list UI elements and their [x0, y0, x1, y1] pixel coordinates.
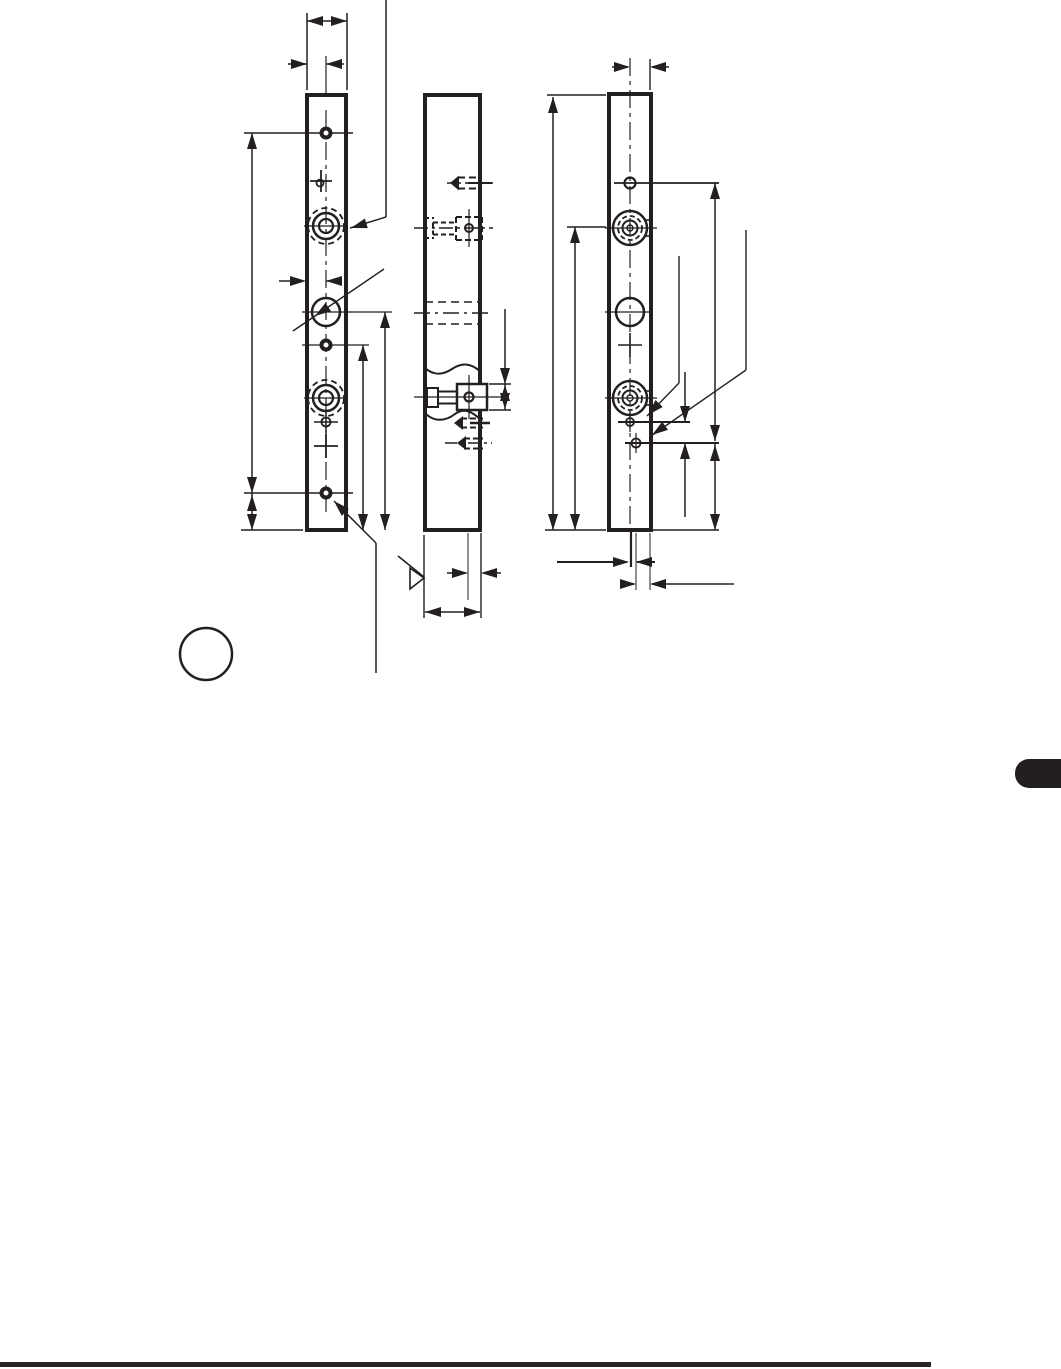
- page-edge-tab: [1015, 759, 1061, 788]
- left-view: [241, 0, 392, 673]
- middle-view: [398, 95, 511, 618]
- right-view: [545, 58, 746, 590]
- balloon-callout: [180, 628, 232, 680]
- footer-rule: [0, 1362, 931, 1367]
- drawing-page: [0, 0, 1061, 1369]
- dimensioned-part-views: [0, 0, 1061, 1369]
